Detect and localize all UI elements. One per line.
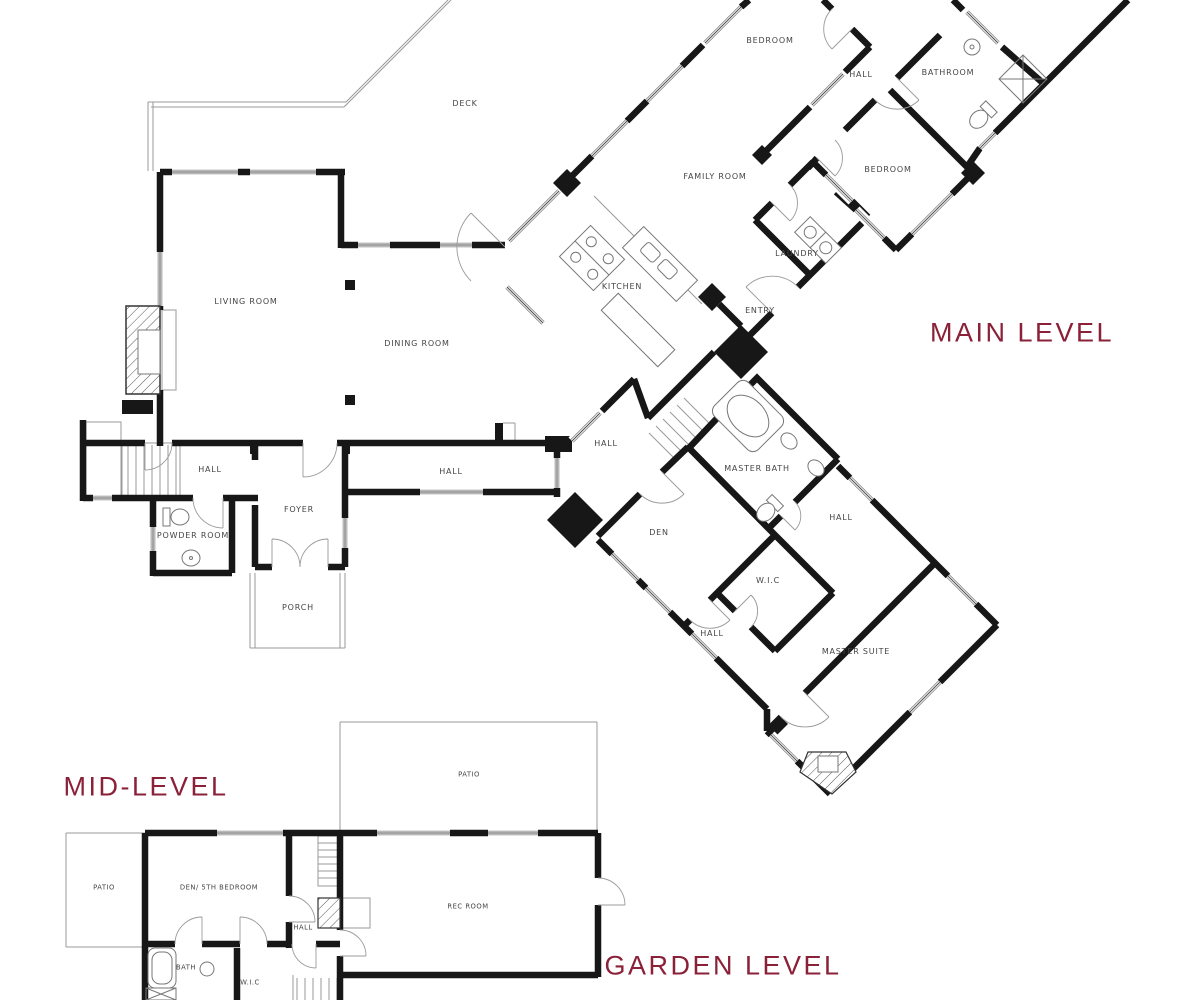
room-label: KITCHEN [602,283,642,291]
room-label: DECK [452,100,477,108]
room-label: MASTER BATH [724,465,790,473]
mid-shower [146,988,176,1000]
room-label: HALL [700,630,724,638]
kitchen-stove [559,225,624,290]
room-label: PORCH [282,604,314,612]
room-label: HALL [594,440,618,448]
bathroom-sink [964,39,980,55]
living-fireplace [126,306,160,394]
room-label: HALL [829,514,853,522]
floor-plan-page: BEDROOM HALL BATHROOM BEDROOM DECK FAMIL… [0,0,1200,1000]
room-label: HALL [439,468,463,476]
room-label: HALL [198,466,222,474]
master-bath-sink [778,430,801,453]
room-label: PATIO [458,772,480,779]
floor-plan-drawing [0,0,1200,1000]
windows-layer [93,7,998,833]
bathroom-toilet [966,101,997,132]
room-label: FAMILY ROOM [683,173,746,181]
room-label: REC ROOM [447,904,488,911]
room-label: DEN/ 5TH BEDROOM [180,885,258,892]
shower [999,55,1047,103]
mid-sink [200,962,214,976]
room-label: MASTER SUITE [822,648,890,656]
mid-level-chimney [318,898,340,928]
master-bathtub [709,377,787,455]
room-label: W.I.C [240,980,260,987]
master-suite-fireplace [800,752,856,794]
room-label: BATH [176,965,196,972]
room-label: DINING ROOM [384,340,449,348]
mid-bathtub [148,948,176,988]
powder-toilet [163,508,189,526]
room-label: POWDER ROOM [157,532,229,540]
room-label: ENTRY [745,307,775,315]
walls-layer [83,0,1128,1000]
level-title-mid: MID-LEVEL [63,774,228,801]
room-label: BEDROOM [864,166,911,174]
level-title-garden: GARDEN LEVEL [604,953,841,980]
room-label: W.I.C [756,577,780,585]
room-label: LIVING ROOM [214,298,277,306]
room-label: FOYER [284,506,314,514]
room-label: BEDROOM [746,37,793,45]
room-label: DEN [649,529,669,537]
powder-sink [182,550,200,566]
room-label: BATHROOM [922,69,975,77]
room-label: PATIO [93,885,115,892]
room-label: LAUNDRY [775,250,819,258]
level-title-main: MAIN LEVEL [930,320,1114,347]
room-label: HALL [849,71,873,79]
kitchen-island [601,293,675,367]
door-arcs-layer [145,9,919,968]
room-label: HALL [293,925,312,932]
